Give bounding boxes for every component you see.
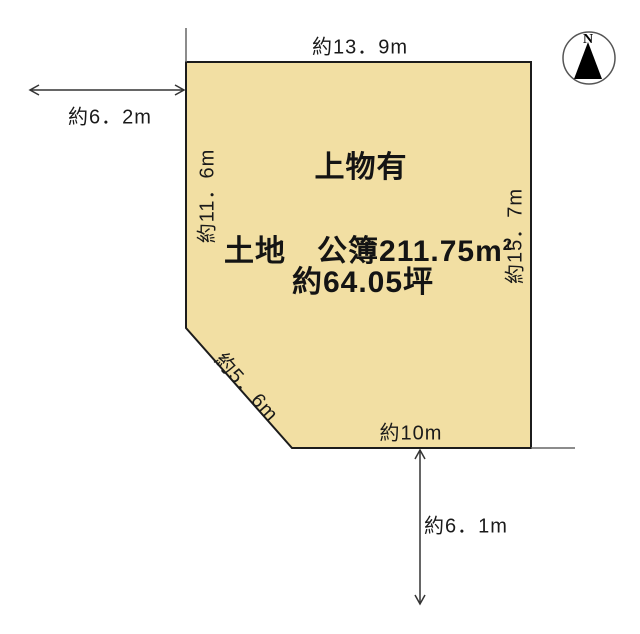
dimension-bottom-road-width: 約6．1m (424, 510, 508, 539)
dimension-bottom-edge: 約10m (380, 417, 443, 446)
compass-north-label: N (583, 32, 593, 47)
diagram-canvas: N (0, 0, 640, 634)
dimension-left-road-width: 約6．2m (68, 101, 152, 130)
north-compass-icon: N (563, 32, 615, 84)
building-exists-note: 上物有 (315, 142, 408, 186)
road-width-arrow-left (30, 85, 184, 95)
land-area-tsubo: 約64.05坪 (292, 257, 434, 301)
square-meter-superscript: 2 (503, 236, 512, 254)
dimension-left-edge: 約11．6m (191, 149, 220, 244)
dimension-top-edge: 約13．9m (312, 31, 408, 60)
land-plot-diagram: N 約13．9m 約6．2m 約11．6m 約15．7m 約5．6m 約10m … (0, 0, 640, 634)
